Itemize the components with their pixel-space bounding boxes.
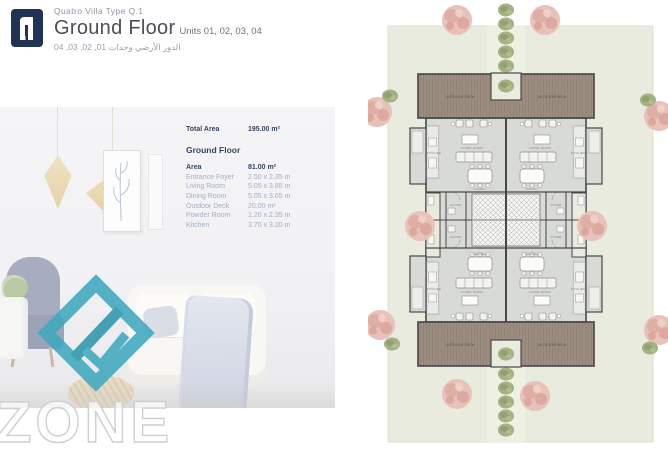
pendant-lamp [40, 155, 76, 209]
room-dim: 5.05 x 3.65 m [248, 192, 318, 202]
brand-logo-icon [10, 8, 44, 48]
botanical-print [104, 151, 138, 229]
arabic-subtitle: الدور الأرضي وحدات 01, 02, 03, 04 [54, 42, 264, 53]
lamp-cord [57, 107, 58, 157]
zone-watermark-text: ZONE [0, 388, 206, 452]
dining-label: DINING [526, 252, 538, 256]
living-room-label: LIVING ROOM [461, 290, 484, 294]
room-name: Kitchen [186, 221, 248, 231]
brochure-page: Quatro Villa Type Q.1 Ground FloorUnits … [0, 0, 668, 452]
deck-label: OUTDOOR DECK [446, 95, 475, 99]
units-label: Units 01, 02, 03, 04 [179, 26, 261, 37]
room-row: Kitchen 3.70 x 3.20 m [186, 221, 318, 231]
page-title: Ground Floor [54, 17, 175, 39]
total-area-value: 195.00 m² [248, 125, 318, 135]
kitchen-label: KITCHEN [427, 287, 442, 291]
villa-type-subtitle: Quatro Villa Type Q.1 [54, 6, 354, 16]
foyer-label: FOYER [550, 203, 562, 207]
deck-label: OUTDOOR DECK [538, 95, 567, 99]
room-dim: 5.05 x 3.85 m [248, 182, 318, 192]
room-dim: 3.70 x 3.20 m [248, 221, 318, 231]
dining-label: DINING [474, 187, 486, 191]
deck-label: OUTDOOR DECK [446, 343, 475, 347]
foyer-label: FOYER [550, 235, 562, 239]
foyer-label: FOYER [450, 235, 462, 239]
room-name: Living Room [186, 182, 248, 192]
total-area-label: Total Area [186, 125, 248, 135]
foyer-label: FOYER [450, 203, 462, 207]
floor-plan: OUTDOOR DECK OUTDOOR DECK OUTDOOR DECK O… [368, 0, 668, 452]
living-room-label: LIVING ROOM [529, 146, 552, 150]
room-row: Powder Room 1.20 x 2.35 m [186, 211, 318, 221]
kitchen-label: KITCHEN [571, 151, 586, 155]
kitchen-label: KITCHEN [571, 287, 586, 291]
area-label: Area [186, 163, 248, 173]
dining-label: DINING [526, 187, 538, 191]
living-room-label: LIVING ROOM [461, 146, 484, 150]
area-spec-table: Total Area 195.00 m² Ground Floor Area 8… [186, 125, 318, 230]
room-name: Dining Room [186, 192, 248, 202]
room-dim: 2.50 x 2.35 m [248, 173, 318, 183]
leaning-canvas [148, 154, 163, 230]
kitchen-label: KITCHEN [427, 151, 442, 155]
section-title: Ground Floor [186, 146, 318, 156]
room-dim: 1.20 x 2.35 m [248, 211, 318, 221]
zone-watermark-icon [8, 258, 184, 408]
room-name: Entrance Foyer [186, 173, 248, 183]
room-dim: 20.00 m² [248, 202, 318, 212]
deck-label: OUTDOOR DECK [538, 343, 567, 347]
living-room-label: LIVING ROOM [529, 290, 552, 294]
room-name: Outdoor Deck [186, 202, 248, 212]
room-row: Dining Room 5.05 x 3.65 m [186, 192, 318, 202]
zone-text: ZONE [0, 390, 173, 452]
room-row: Living Room 5.05 x 3.85 m [186, 182, 318, 192]
area-value: 81.00 m² [248, 163, 318, 173]
room-row: Outdoor Deck 20.00 m² [186, 202, 318, 212]
room-name: Powder Room [186, 211, 248, 221]
wall-art-frame [103, 150, 141, 232]
room-row: Entrance Foyer 2.50 x 2.35 m [186, 173, 318, 183]
dining-label: DINING [474, 252, 486, 256]
